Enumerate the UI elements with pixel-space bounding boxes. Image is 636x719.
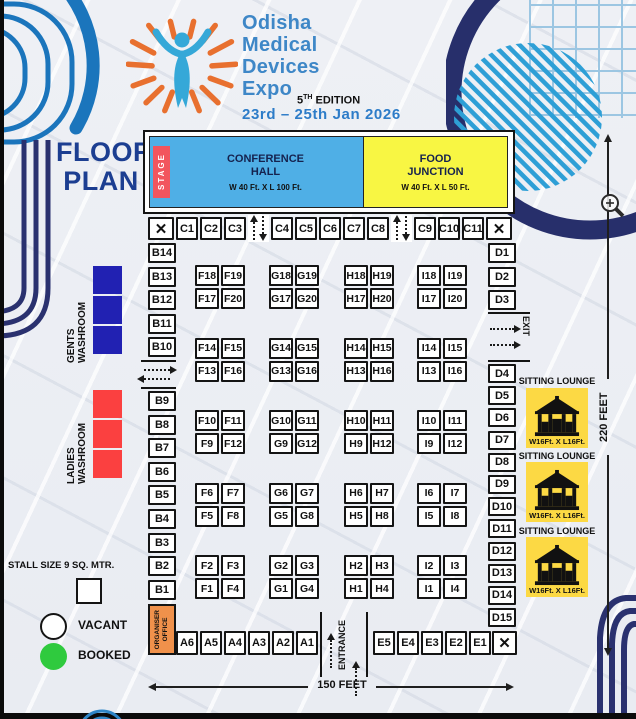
exit-arrow-right-icon <box>490 328 514 330</box>
stall-g18[interactable]: G18 <box>269 265 293 286</box>
stall-f4[interactable]: F4 <box>221 578 245 599</box>
gap-arrow-left-icon <box>144 378 170 380</box>
entrance-arrow-up-icon <box>330 640 332 668</box>
stall-c1[interactable]: C1 <box>176 217 198 240</box>
height-arrowhead-down-icon <box>604 648 612 656</box>
blocked-x-cell: ✕ <box>486 217 512 240</box>
stall-i7[interactable]: I7 <box>443 483 467 504</box>
stall-i17[interactable]: I17 <box>417 288 441 309</box>
stall-d7[interactable]: D7 <box>488 431 516 450</box>
conference-hall: STAGE CONFERENCEHALL W 40 Ft. X L 100 Ft… <box>149 136 364 208</box>
organiser-office[interactable]: ORGANISEROFFICE <box>148 604 176 655</box>
stall-g7[interactable]: G7 <box>295 483 319 504</box>
stall-c9[interactable]: C9 <box>414 217 436 240</box>
e-stall-row: E5E4E3E2E1 <box>373 631 491 655</box>
d-column-bottom: D4D5D6D7D8D9D10D11D12D13D14D15 <box>488 364 516 627</box>
stall-i8[interactable]: I8 <box>443 506 467 527</box>
stall-block: G2G3G1G4 <box>269 555 319 599</box>
vacant-legend-label: VACANT <box>78 618 127 632</box>
expo-floor-plan-page: Odisha Medical Devices Expo 5TH EDITION … <box>0 0 636 719</box>
aisle-arrow-up-icon <box>253 222 255 240</box>
stall-f7[interactable]: F7 <box>221 483 245 504</box>
c-mid-group: C4C5C6C7C8 <box>271 217 389 240</box>
stall-a5[interactable]: A5 <box>200 631 222 655</box>
stall-g12[interactable]: G12 <box>295 433 319 454</box>
stall-h16[interactable]: H16 <box>370 361 394 382</box>
gap-arrow-right-icon <box>144 369 170 371</box>
entrance-label: ENTRANCE <box>337 620 347 670</box>
aisle-gap <box>248 215 269 242</box>
stall-g16[interactable]: G16 <box>295 361 319 382</box>
stall-b7[interactable]: B7 <box>148 438 176 458</box>
stall-i14[interactable]: I14 <box>417 338 441 359</box>
stall-c10[interactable]: C10 <box>438 217 460 240</box>
stall-f17[interactable]: F17 <box>195 288 219 309</box>
height-arrow-line <box>607 141 609 379</box>
stall-h15[interactable]: H15 <box>370 338 394 359</box>
stall-i12[interactable]: I12 <box>443 433 467 454</box>
stall-size-note: STALL SIZE 9 SQ. MTR. <box>8 560 140 571</box>
width-dimension-label: 150 FEET <box>310 679 374 691</box>
stall-c2[interactable]: C2 <box>200 217 222 240</box>
ladies-washroom-block <box>93 420 122 448</box>
bottomright-curves-decoration <box>560 586 636 713</box>
stall-f9[interactable]: F9 <box>195 433 219 454</box>
stall-g9[interactable]: G9 <box>269 433 293 454</box>
aisle-arrow-down-icon <box>262 216 264 234</box>
stall-h8[interactable]: H8 <box>370 506 394 527</box>
i-block-column: I18I19I17I20I14I15I13I16I10I11I9I12I6I7I… <box>417 265 467 599</box>
ladies-washroom-label: LADIES WASHROOM <box>66 386 88 484</box>
frame-left <box>0 0 4 719</box>
stall-a3[interactable]: A3 <box>248 631 270 655</box>
stall-f19[interactable]: F19 <box>221 265 245 286</box>
sitting-lounge-label: SITTING LOUNGE <box>517 451 597 461</box>
stall-f1[interactable]: F1 <box>195 578 219 599</box>
stall-block: H10H11H9H12 <box>344 410 394 454</box>
stall-g5[interactable]: G5 <box>269 506 293 527</box>
b-column-bottom: B9B8B7B6B5B4B3B2B1 <box>148 391 176 600</box>
gents-washroom-block <box>93 266 122 294</box>
stall-d6[interactable]: D6 <box>488 408 516 427</box>
stall-i13[interactable]: I13 <box>417 361 441 382</box>
floor-plan-title: FLOOR PLAN <box>56 138 146 196</box>
stall-i19[interactable]: I19 <box>443 265 467 286</box>
bottom-arcs-decoration <box>80 706 124 719</box>
gazebo-icon <box>534 544 580 586</box>
stall-g17[interactable]: G17 <box>269 288 293 309</box>
stall-block: F2F3F1F4 <box>195 555 245 599</box>
stall-i5[interactable]: I5 <box>417 506 441 527</box>
stall-block: I6I7I5I8 <box>417 483 467 527</box>
gazebo-icon <box>534 469 580 511</box>
stall-d11[interactable]: D11 <box>488 519 516 538</box>
stall-d9[interactable]: D9 <box>488 475 516 494</box>
stall-i9[interactable]: I9 <box>417 433 441 454</box>
stall-h10[interactable]: H10 <box>344 410 368 431</box>
expo-logo-icon <box>126 6 238 122</box>
stall-f3[interactable]: F3 <box>221 555 245 576</box>
entrance-arrow-up-icon <box>355 668 357 696</box>
stall-block: I14I15I13I16 <box>417 338 467 382</box>
food-junction: FOODJUNCTION W 40 Ft. X L 50 Ft. <box>363 136 508 208</box>
stall-block: F14F15F13F16 <box>195 338 245 382</box>
stall-h12[interactable]: H12 <box>370 433 394 454</box>
stall-b1[interactable]: B1 <box>148 580 176 600</box>
stall-h17[interactable]: H17 <box>344 288 368 309</box>
stall-g11[interactable]: G11 <box>295 410 319 431</box>
gents-washroom-block <box>93 296 122 324</box>
stall-a6[interactable]: A6 <box>176 631 198 655</box>
stall-e2[interactable]: E2 <box>445 631 467 655</box>
gents-washroom-block <box>93 326 122 354</box>
stall-b4[interactable]: B4 <box>148 509 176 529</box>
stall-c11[interactable]: C11 <box>462 217 484 240</box>
expo-title: Odisha Medical Devices Expo <box>242 12 320 100</box>
stall-b2[interactable]: B2 <box>148 556 176 576</box>
entrance-wall-left <box>320 612 322 677</box>
title-line-1: Odisha <box>242 12 320 34</box>
stall-b3[interactable]: B3 <box>148 533 176 553</box>
stall-d10[interactable]: D10 <box>488 497 516 516</box>
stall-block: H18H19H17H20 <box>344 265 394 309</box>
a-stall-row: A6A5A4A3A2A1 <box>176 631 318 655</box>
stall-g15[interactable]: G15 <box>295 338 319 359</box>
stage-area: STAGE <box>153 146 170 198</box>
stall-g1[interactable]: G1 <box>269 578 293 599</box>
stall-h4[interactable]: H4 <box>370 578 394 599</box>
stall-f2[interactable]: F2 <box>195 555 219 576</box>
edition-label: 5TH EDITION <box>297 94 360 107</box>
aisle-arrow-down-icon <box>405 216 407 234</box>
stall-i10[interactable]: I10 <box>417 410 441 431</box>
g-block-column: G18G19G17G20G14G15G13G16G10G11G9G12G6G7G… <box>269 265 319 599</box>
stall-f15[interactable]: F15 <box>221 338 245 359</box>
event-dates: 23rd – 25th Jan 2026 <box>242 106 401 123</box>
stall-f6[interactable]: F6 <box>195 483 219 504</box>
stall-h9[interactable]: H9 <box>344 433 368 454</box>
stall-f12[interactable]: F12 <box>221 433 245 454</box>
stall-g19[interactable]: G19 <box>295 265 319 286</box>
stall-f16[interactable]: F16 <box>221 361 245 382</box>
stall-c4[interactable]: C4 <box>271 217 293 240</box>
stall-i11[interactable]: I11 <box>443 410 467 431</box>
c-stall-row: ✕ C1C2C3 C4C5C6C7C8 C9C10C11 ✕ <box>148 215 517 242</box>
blocked-x-cell: ✕ <box>492 631 517 655</box>
sitting-lounge-label: SITTING LOUNGE <box>517 526 597 536</box>
stall-g4[interactable]: G4 <box>295 578 319 599</box>
stall-a2[interactable]: A2 <box>272 631 294 655</box>
stall-f8[interactable]: F8 <box>221 506 245 527</box>
stall-d4[interactable]: D4 <box>488 364 516 383</box>
stall-h11[interactable]: H11 <box>370 410 394 431</box>
b-column-top: B14B13B12B11B10 <box>148 243 176 357</box>
stall-i6[interactable]: I6 <box>417 483 441 504</box>
sitting-lounge: W16Ft. X L16Ft. <box>526 537 588 597</box>
stall-h19[interactable]: H19 <box>370 265 394 286</box>
gazebo-icon <box>534 395 580 437</box>
height-arrow-line <box>607 455 609 648</box>
stall-block: F10F11F9F12 <box>195 410 245 454</box>
stall-g8[interactable]: G8 <box>295 506 319 527</box>
booked-legend-swatch <box>40 643 67 670</box>
stall-d12[interactable]: D12 <box>488 542 516 561</box>
stall-f14[interactable]: F14 <box>195 338 219 359</box>
stall-block: I2I3I1I4 <box>417 555 467 599</box>
stall-block: G18G19G17G20 <box>269 265 319 309</box>
stall-a1[interactable]: A1 <box>296 631 318 655</box>
stall-i4[interactable]: I4 <box>443 578 467 599</box>
exit-gap <box>488 312 530 362</box>
stall-block: I10I11I9I12 <box>417 410 467 454</box>
blocked-x-cell: ✕ <box>148 217 174 240</box>
stall-f5[interactable]: F5 <box>195 506 219 527</box>
stall-d8[interactable]: D8 <box>488 453 516 472</box>
stall-b14[interactable]: B14 <box>148 243 176 263</box>
stall-e5[interactable]: E5 <box>373 631 395 655</box>
stall-b10[interactable]: B10 <box>148 337 176 357</box>
title-line-2: Medical <box>242 34 320 56</box>
stall-c3[interactable]: C3 <box>224 217 246 240</box>
stall-block: H6H7H5H8 <box>344 483 394 527</box>
stall-d13[interactable]: D13 <box>488 564 516 583</box>
stall-e4[interactable]: E4 <box>397 631 419 655</box>
height-dimension-label: 220 FEET <box>598 383 610 451</box>
stall-i3[interactable]: I3 <box>443 555 467 576</box>
stall-block: G14G15G13G16 <box>269 338 319 382</box>
b-column-gap <box>141 360 176 389</box>
stall-c7[interactable]: C7 <box>343 217 365 240</box>
stall-g20[interactable]: G20 <box>295 288 319 309</box>
stall-d2[interactable]: D2 <box>488 267 516 287</box>
stall-block: G10G11G9G12 <box>269 410 319 454</box>
stall-h7[interactable]: H7 <box>370 483 394 504</box>
stall-b8[interactable]: B8 <box>148 415 176 435</box>
stall-g14[interactable]: G14 <box>269 338 293 359</box>
stall-block: H14H15H13H16 <box>344 338 394 382</box>
conference-size: W 40 Ft. X L 100 Ft. <box>227 183 304 192</box>
width-arrowhead-right-icon <box>506 683 514 691</box>
stall-i20[interactable]: I20 <box>443 288 467 309</box>
stall-d5[interactable]: D5 <box>488 386 516 405</box>
stall-block: I18I19I17I20 <box>417 265 467 309</box>
stall-b13[interactable]: B13 <box>148 267 176 287</box>
width-arrow-line <box>376 686 506 688</box>
food-size: W 40 Ft. X L 50 Ft. <box>401 183 469 192</box>
stall-f13[interactable]: F13 <box>195 361 219 382</box>
stall-d14[interactable]: D14 <box>488 586 516 605</box>
stall-i1[interactable]: I1 <box>417 578 441 599</box>
stall-b5[interactable]: B5 <box>148 485 176 505</box>
stall-c8[interactable]: C8 <box>367 217 389 240</box>
stall-block: H2H3H1H4 <box>344 555 394 599</box>
stall-b9[interactable]: B9 <box>148 391 176 411</box>
stall-f11[interactable]: F11 <box>221 410 245 431</box>
stall-b12[interactable]: B12 <box>148 290 176 310</box>
stall-c6[interactable]: C6 <box>319 217 341 240</box>
stall-size-sample <box>76 578 102 604</box>
stall-i18[interactable]: I18 <box>417 265 441 286</box>
stall-i15[interactable]: I15 <box>443 338 467 359</box>
stall-h14[interactable]: H14 <box>344 338 368 359</box>
hall-banner: STAGE CONFERENCEHALL W 40 Ft. X L 100 Ft… <box>143 130 515 214</box>
exit-arrow-right-icon <box>490 344 514 346</box>
stall-i2[interactable]: I2 <box>417 555 441 576</box>
stall-h3[interactable]: H3 <box>370 555 394 576</box>
stall-h13[interactable]: H13 <box>344 361 368 382</box>
h-block-column: H18H19H17H20H14H15H13H16H10H11H9H12H6H7H… <box>344 265 394 599</box>
stall-g3[interactable]: G3 <box>295 555 319 576</box>
stall-g13[interactable]: G13 <box>269 361 293 382</box>
stall-e3[interactable]: E3 <box>421 631 443 655</box>
stall-h2[interactable]: H2 <box>344 555 368 576</box>
stall-f20[interactable]: F20 <box>221 288 245 309</box>
stall-block: F6F7F5F8 <box>195 483 245 527</box>
vacant-legend-swatch <box>40 613 67 640</box>
stall-b11[interactable]: B11 <box>148 314 176 334</box>
c-left-group: C1C2C3 <box>176 217 246 240</box>
booked-legend-label: BOOKED <box>78 648 131 662</box>
zoom-cursor-icon <box>600 193 626 219</box>
f-block-column: F18F19F17F20F14F15F13F16F10F11F9F12F6F7F… <box>195 265 245 599</box>
stall-b6[interactable]: B6 <box>148 462 176 482</box>
sitting-lounge-label: SITTING LOUNGE <box>517 376 597 386</box>
stall-g2[interactable]: G2 <box>269 555 293 576</box>
stall-i16[interactable]: I16 <box>443 361 467 382</box>
entrance-wall-right <box>366 612 368 677</box>
stall-h1[interactable]: H1 <box>344 578 368 599</box>
title-line-3: Devices <box>242 56 320 78</box>
stall-h5[interactable]: H5 <box>344 506 368 527</box>
gents-washroom-label: GENTS WASHROOM <box>66 265 88 363</box>
sitting-lounge: W16Ft. X L16Ft. <box>526 388 588 448</box>
stall-a4[interactable]: A4 <box>224 631 246 655</box>
c-right-group: C9C10C11 <box>414 217 484 240</box>
stall-e1[interactable]: E1 <box>469 631 491 655</box>
d-column-top: D1D2D3 <box>488 243 516 310</box>
ladies-washroom-block <box>93 390 122 418</box>
stall-d1[interactable]: D1 <box>488 243 516 263</box>
stall-d3[interactable]: D3 <box>488 290 516 310</box>
stall-h6[interactable]: H6 <box>344 483 368 504</box>
stall-h18[interactable]: H18 <box>344 265 368 286</box>
stall-c5[interactable]: C5 <box>295 217 317 240</box>
aisle-gap <box>391 215 412 242</box>
stall-g6[interactable]: G6 <box>269 483 293 504</box>
aisle-arrow-up-icon <box>396 222 398 240</box>
stall-h20[interactable]: H20 <box>370 288 394 309</box>
stall-block: G6G7G5G8 <box>269 483 319 527</box>
stall-f18[interactable]: F18 <box>195 265 219 286</box>
width-arrow-line <box>155 686 308 688</box>
stall-block: F18F19F17F20 <box>195 265 245 309</box>
stall-f10[interactable]: F10 <box>195 410 219 431</box>
ladies-washroom-block <box>93 450 122 478</box>
sitting-lounge: W16Ft. X L16Ft. <box>526 462 588 522</box>
stall-g10[interactable]: G10 <box>269 410 293 431</box>
stall-d15[interactable]: D15 <box>488 608 516 627</box>
